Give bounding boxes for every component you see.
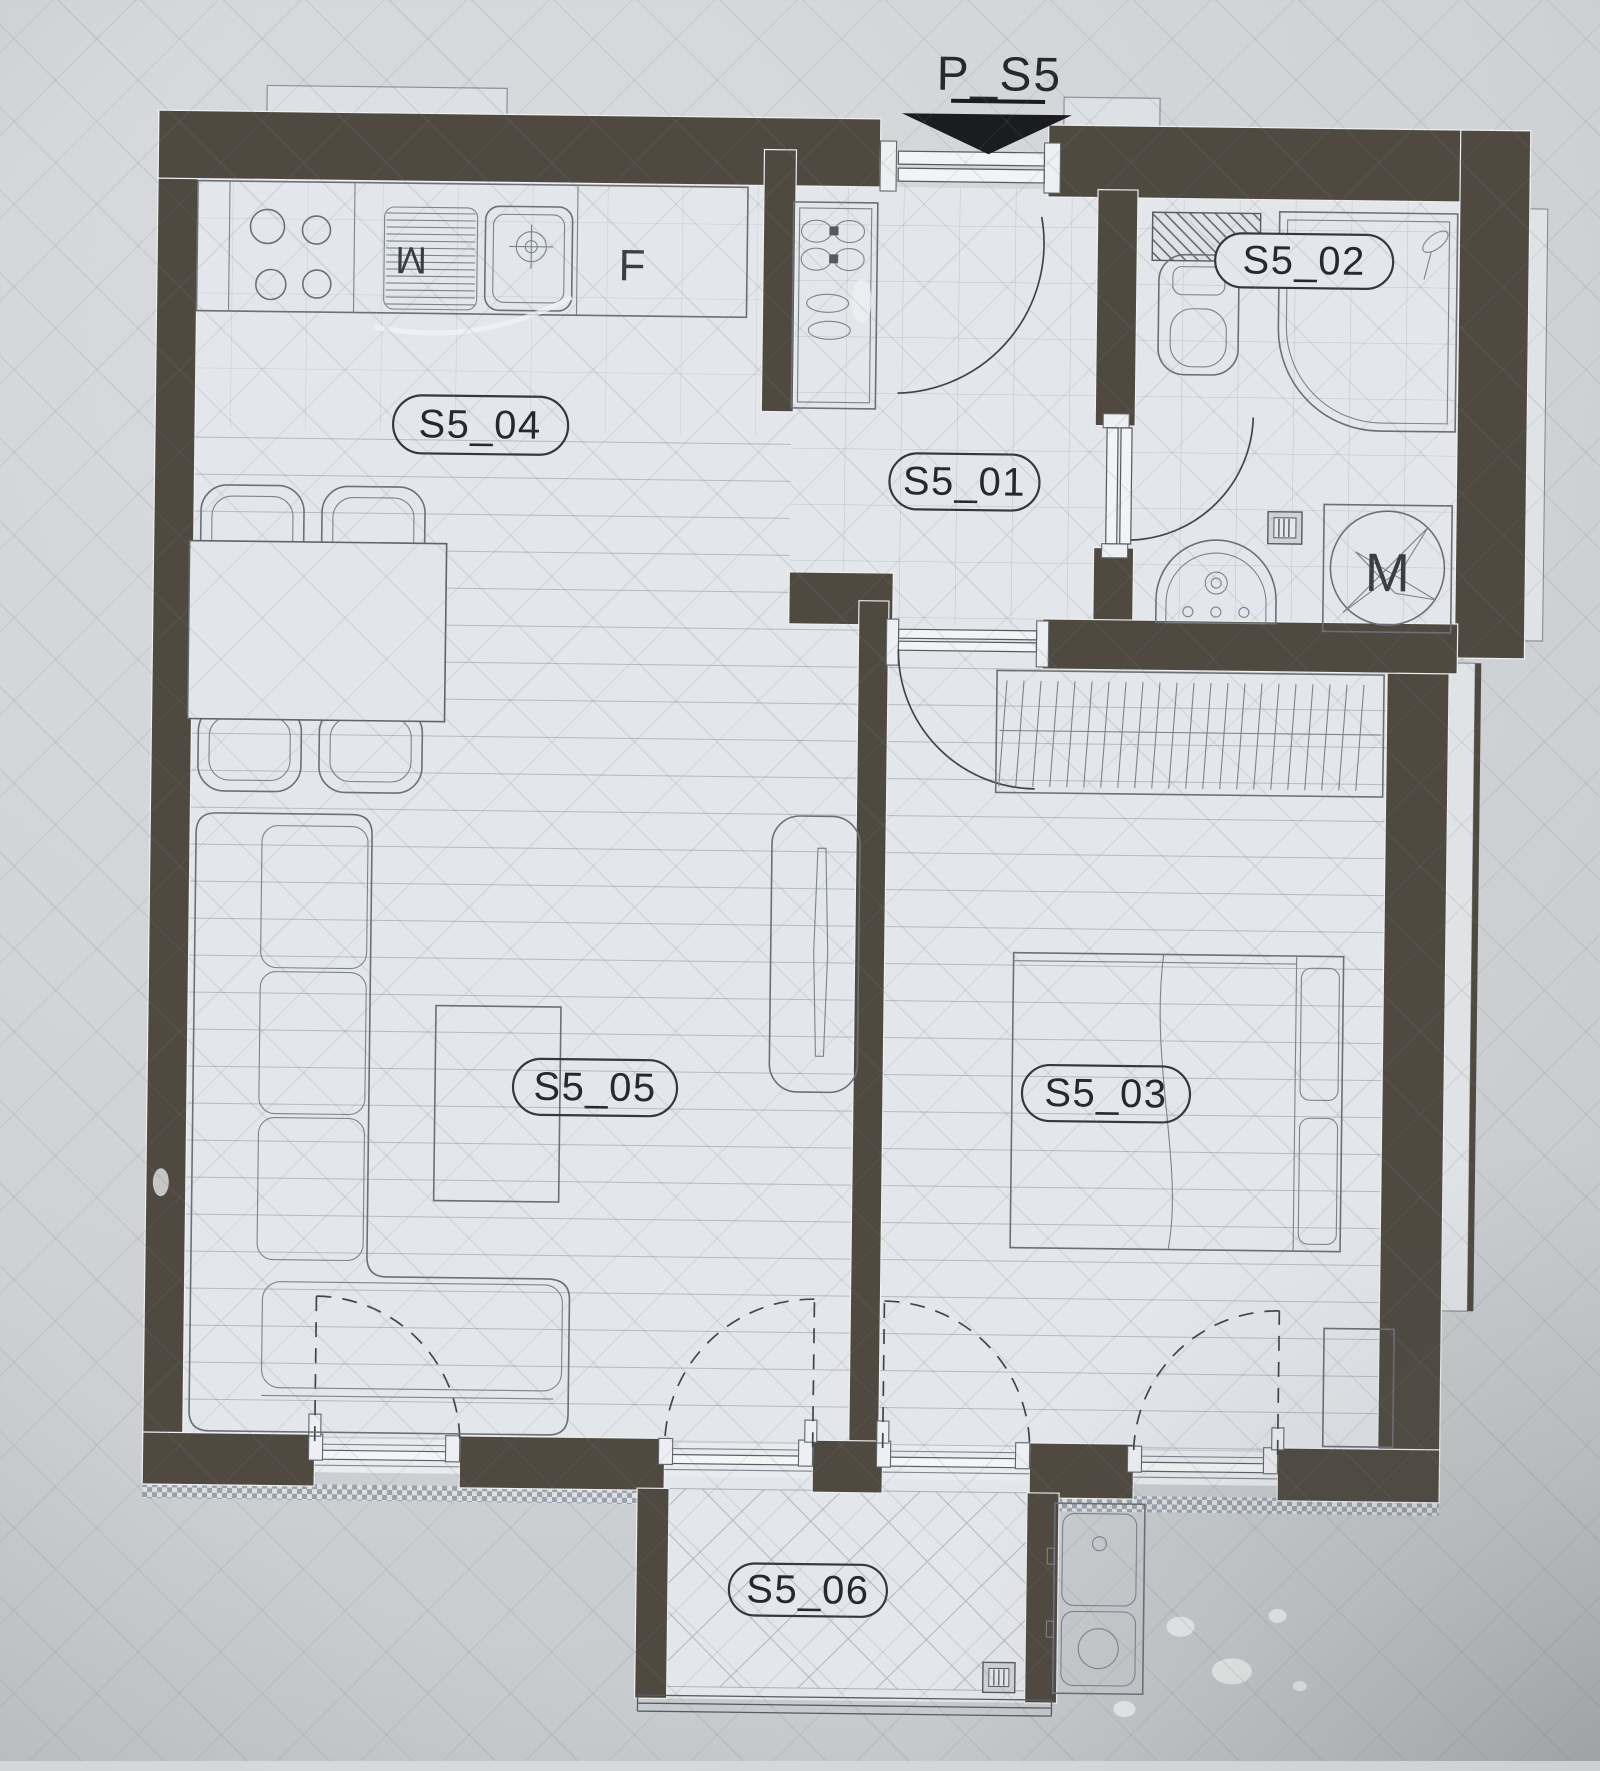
- floor-plan: M F: [0, 0, 1600, 1771]
- fridge-letter: F: [618, 241, 645, 290]
- room-label-hallway: S5_01: [889, 453, 1040, 511]
- svg-text:S5_04: S5_04: [418, 402, 542, 448]
- svg-text:S5_01: S5_01: [903, 459, 1027, 505]
- wall-balcony-left: [635, 1488, 670, 1698]
- floor-drain-icon: [1268, 512, 1302, 544]
- svg-text:S5_03: S5_03: [1044, 1071, 1168, 1117]
- parapet-ledge-top-right: [1064, 97, 1160, 128]
- wall-right-bathroom: [1454, 130, 1530, 659]
- wall-bottom-pier-5: [1277, 1448, 1440, 1503]
- wall-right-bedroom: [1377, 657, 1449, 1503]
- floor-drain-icon: [983, 1662, 1015, 1692]
- wall-bottom-pier-3: [812, 1440, 883, 1493]
- photo-of-floor-plan: { "colors": { "wall": "#4f4940", "paper"…: [0, 0, 1600, 1761]
- washing-machine-letter: M: [1365, 543, 1411, 604]
- svg-text:S5_05: S5_05: [533, 1065, 657, 1111]
- dining-table: [188, 541, 447, 722]
- svg-text:S5_02: S5_02: [1242, 238, 1366, 284]
- room-label-living-room: S5_05: [513, 1059, 678, 1117]
- room-label-bedroom: S5_03: [1022, 1065, 1191, 1123]
- wall-bathroom-bedroom: [1042, 619, 1458, 674]
- section-marker: P_S5: [901, 47, 1072, 155]
- svg-text:S5_06: S5_06: [746, 1567, 870, 1613]
- ac-unit-icon: [1046, 1503, 1145, 1694]
- wall-bottom-pier-1: [142, 1432, 315, 1486]
- section-marker-label: P_S5: [936, 48, 1062, 103]
- wall-hall-bathroom-upper: [1095, 190, 1138, 426]
- wall-bottom-pier-4: [1029, 1443, 1134, 1499]
- wall-bottom-pier-2: [459, 1436, 665, 1491]
- drainer-letter: M: [395, 238, 427, 280]
- room-label-bathroom: S5_02: [1215, 233, 1394, 289]
- room-label-balcony: S5_06: [729, 1563, 888, 1617]
